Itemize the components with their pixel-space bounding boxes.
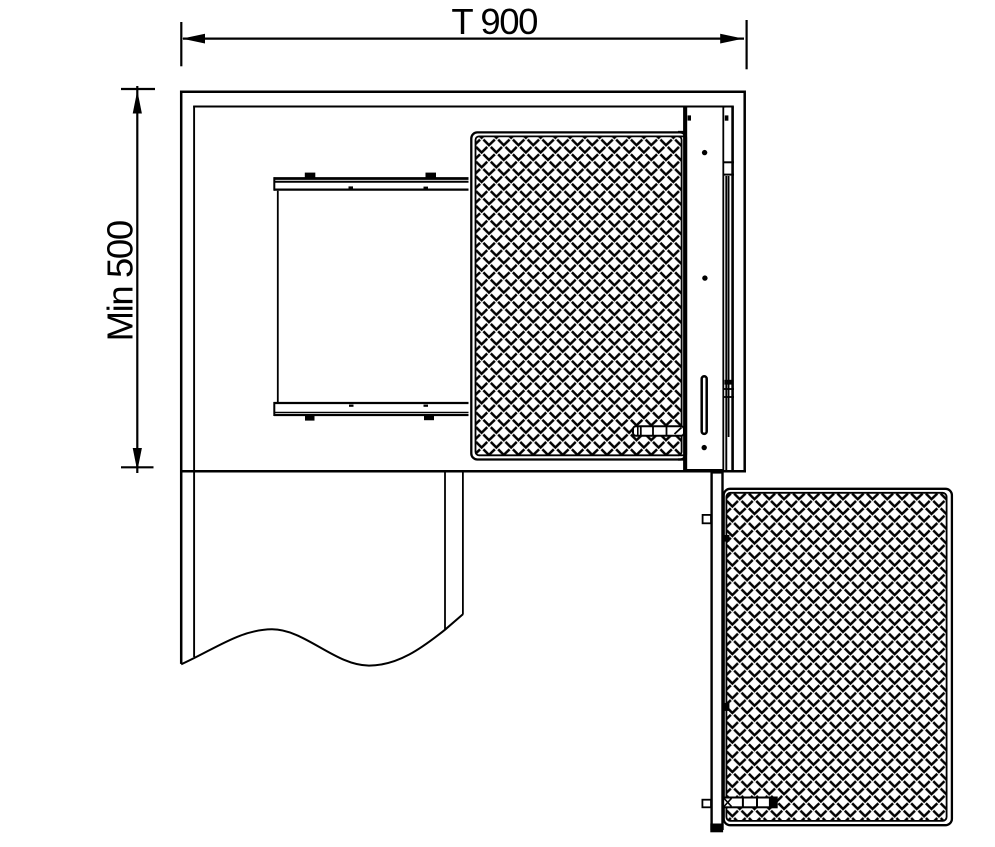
svg-text:Min 500: Min 500 bbox=[99, 221, 140, 341]
svg-text:T 900: T 900 bbox=[451, 1, 537, 42]
